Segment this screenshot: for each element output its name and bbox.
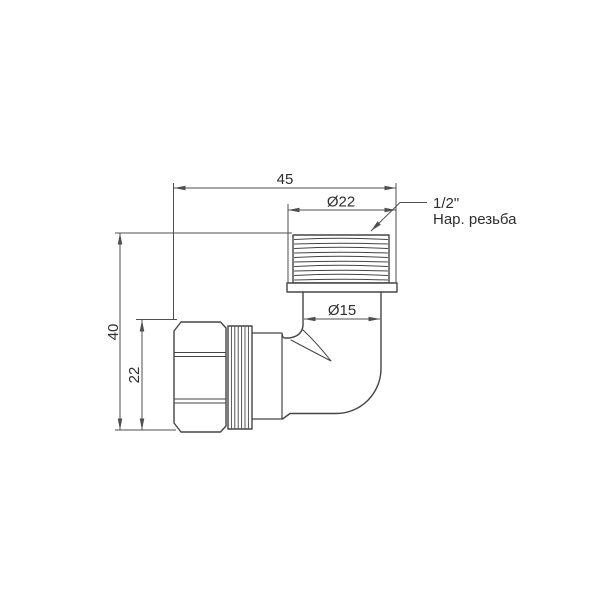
flange bbox=[287, 283, 397, 292]
hex-nut bbox=[174, 322, 226, 432]
male-thread-body bbox=[293, 235, 389, 283]
inner-fillet-highlight bbox=[291, 329, 331, 361]
dim-overall-height-label: 40 bbox=[105, 324, 122, 341]
thread-callout-line2: Нар. резьба bbox=[433, 211, 517, 228]
dim-bore-diameter-label: Ø15 bbox=[328, 302, 356, 319]
elbow-outer-left bbox=[282, 292, 303, 338]
drawing-canvas: 45 Ø22 Ø15 40 22 1/2" Нар. резьба bbox=[0, 0, 600, 600]
fitting-outline bbox=[174, 235, 397, 432]
dim-thread-diameter-label: Ø22 bbox=[327, 194, 355, 211]
dimension-layer bbox=[115, 183, 427, 430]
dim-overall-width-label: 45 bbox=[277, 171, 294, 188]
thread-callout-line1: 1/2" bbox=[433, 195, 459, 212]
dim-nut-height-label: 22 bbox=[126, 367, 143, 384]
technical-drawing: 45 Ø22 Ø15 40 22 1/2" Нар. резьба bbox=[0, 0, 600, 600]
callout-leader-line bbox=[371, 203, 427, 232]
